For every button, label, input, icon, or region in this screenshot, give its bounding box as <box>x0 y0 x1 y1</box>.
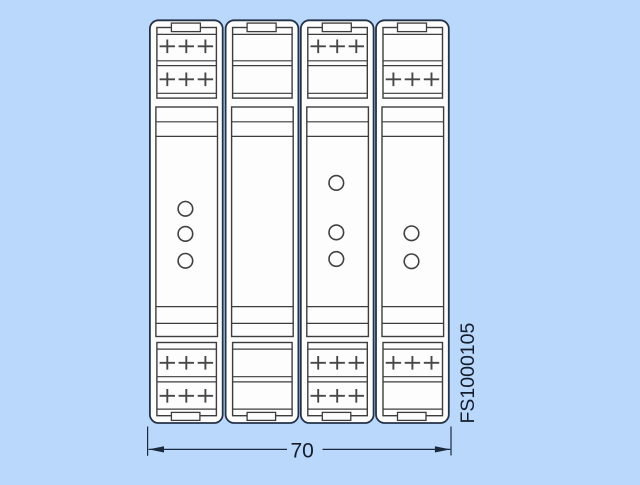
svg-text:FS1000105: FS1000105 <box>457 323 479 424</box>
svg-text:70: 70 <box>291 440 314 463</box>
